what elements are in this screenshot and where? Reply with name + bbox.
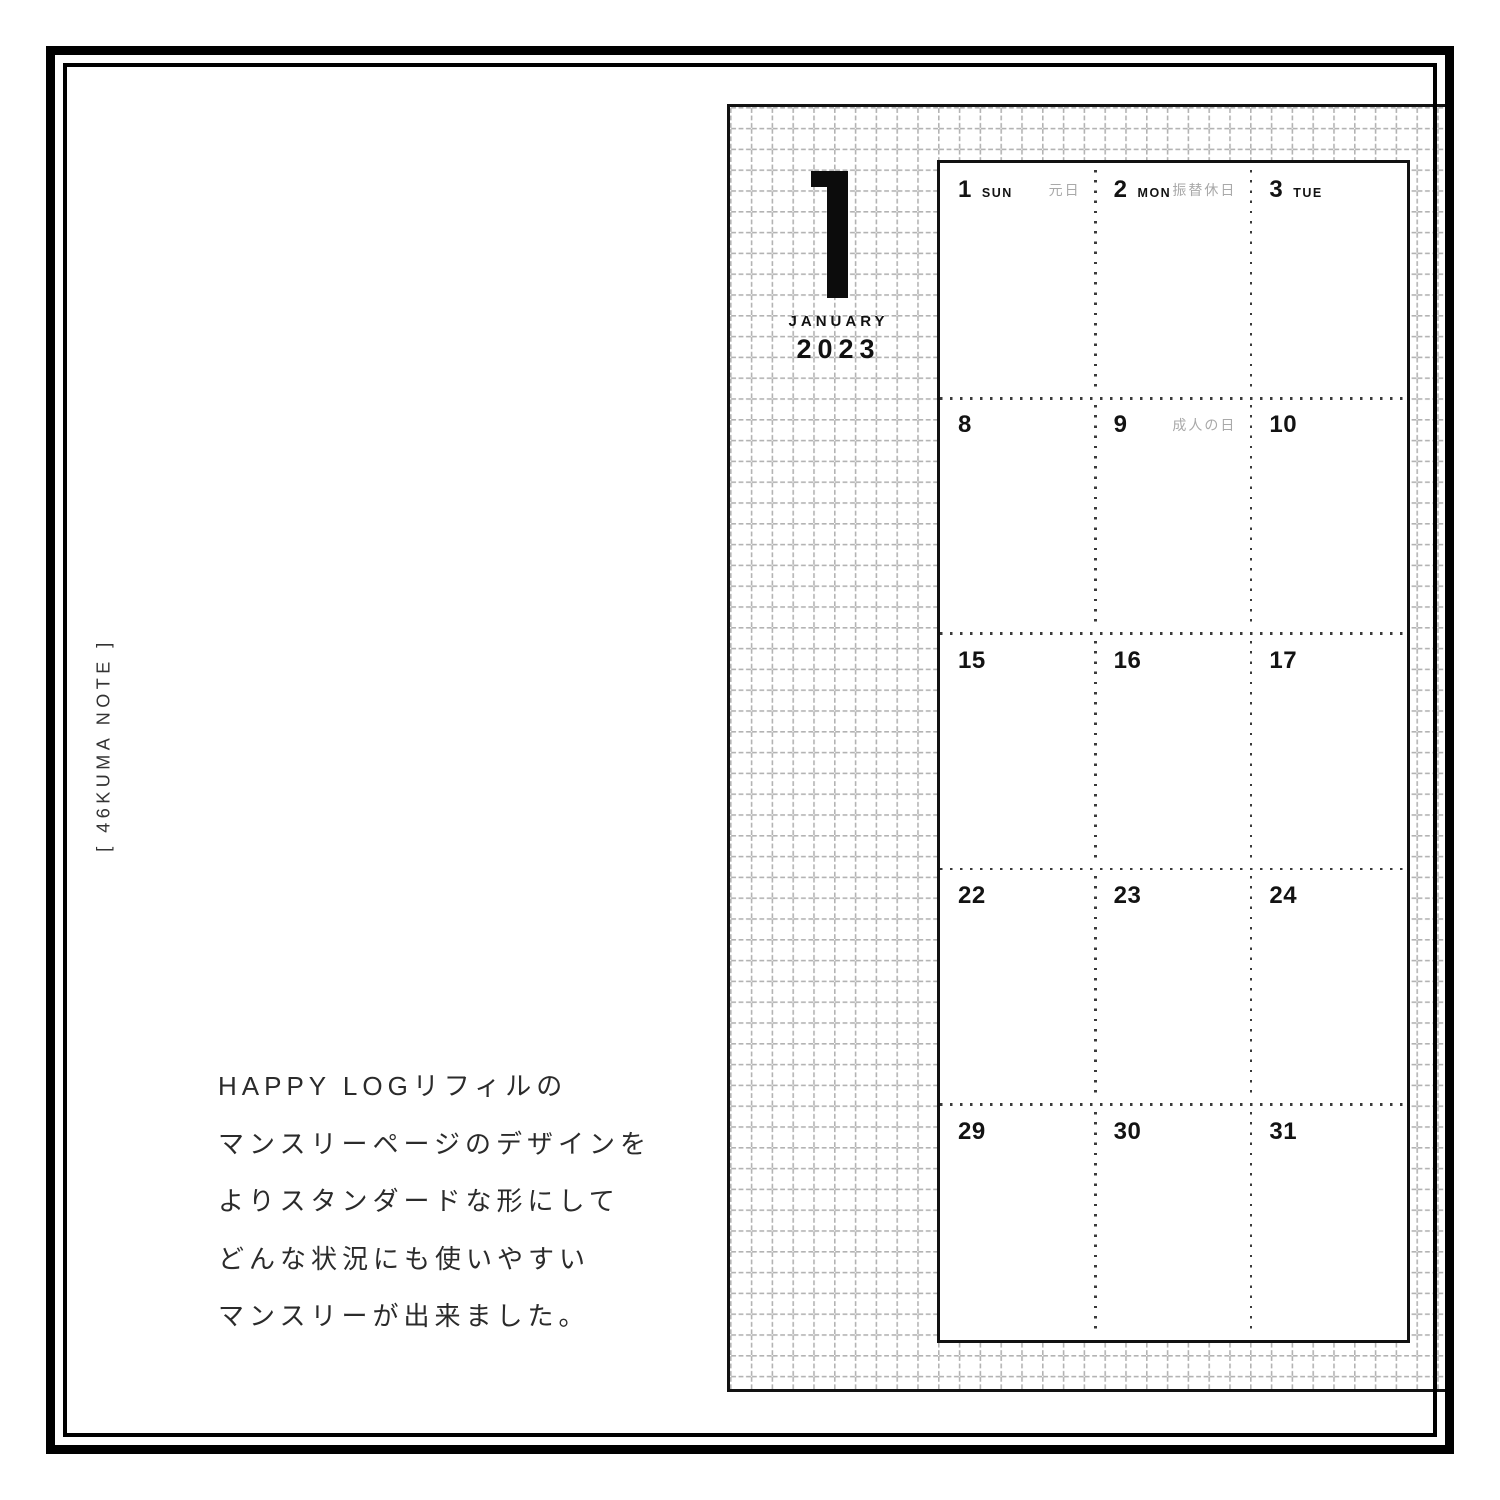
grid-paper-panel: JANUARY 2023 1 SUN 元日 2 MON (727, 104, 1450, 1392)
week-row-2: 8 9 成人の日 10 (940, 398, 1407, 633)
day-number: 16 (1114, 647, 1142, 675)
day-number: 9 (1114, 411, 1128, 439)
day-cell: 31 (1251, 1105, 1407, 1340)
day-cell: 23 (1096, 869, 1252, 1104)
day-cell: 16 (1096, 634, 1252, 869)
month-numeral-icon (811, 171, 848, 298)
day-cell: 29 (940, 1105, 1096, 1340)
day-number: 2 (1114, 176, 1128, 204)
day-cell: 24 (1251, 869, 1407, 1104)
holiday-label: 元日 (1049, 180, 1081, 200)
day-number: 29 (958, 1118, 986, 1146)
year-label: 2023 (770, 334, 907, 365)
description-line: HAPPY LOGリフィルの (218, 1058, 651, 1116)
day-number: 30 (1114, 1118, 1142, 1146)
day-number: 8 (958, 411, 972, 439)
day-number: 3 (1269, 176, 1283, 204)
weekday-label: TUE (1293, 186, 1323, 200)
day-cell: 3 TUE (1251, 163, 1407, 398)
day-cell: 8 (940, 398, 1096, 633)
product-image: JANUARY 2023 1 SUN 元日 2 MON (0, 0, 1500, 1500)
month-header: JANUARY 2023 (770, 313, 907, 365)
week-row-4: 22 23 24 (940, 869, 1407, 1104)
weekday-label: SUN (982, 186, 1013, 200)
holiday-label: 振替休日 (1172, 180, 1236, 200)
day-cell: 10 (1251, 398, 1407, 633)
day-number: 15 (958, 647, 986, 675)
description-line: どんな状況にも使いやすい (218, 1231, 651, 1289)
day-cell: 22 (940, 869, 1096, 1104)
description-line: マンスリーが出来ました。 (218, 1288, 651, 1346)
day-number: 10 (1269, 411, 1297, 439)
weekday-label: MON (1138, 186, 1172, 200)
day-number: 17 (1269, 647, 1297, 675)
brand-vertical-label: [ 46KUMA NOTE ] (94, 638, 115, 852)
day-number: 1 (958, 176, 972, 204)
day-cell: 15 (940, 634, 1096, 869)
calendar-card: 1 SUN 元日 2 MON 振替休日 3 TUE (937, 160, 1410, 1343)
week-row-3: 15 16 17 (940, 634, 1407, 869)
day-cell: 17 (1251, 634, 1407, 869)
description-line: マンスリーページのデザインを (218, 1116, 651, 1174)
day-cell: 9 成人の日 (1096, 398, 1252, 633)
day-line: 3 TUE (1269, 176, 1391, 204)
holiday-label: 成人の日 (1172, 415, 1236, 435)
description-line: よりスタンダードな形にして (218, 1173, 651, 1231)
day-number: 24 (1269, 882, 1297, 910)
product-description: HAPPY LOGリフィルの マンスリーページのデザインを よりスタンダードな形… (218, 1058, 651, 1346)
month-name: JANUARY (770, 313, 907, 330)
day-number: 22 (958, 882, 986, 910)
day-cell: 1 SUN 元日 (940, 163, 1096, 398)
week-row-5: 29 30 31 (940, 1105, 1407, 1340)
day-number: 23 (1114, 882, 1142, 910)
day-cell: 2 MON 振替休日 (1096, 163, 1252, 398)
day-cell: 30 (1096, 1105, 1252, 1340)
day-number: 31 (1269, 1118, 1297, 1146)
week-row-1: 1 SUN 元日 2 MON 振替休日 3 TUE (940, 163, 1407, 398)
